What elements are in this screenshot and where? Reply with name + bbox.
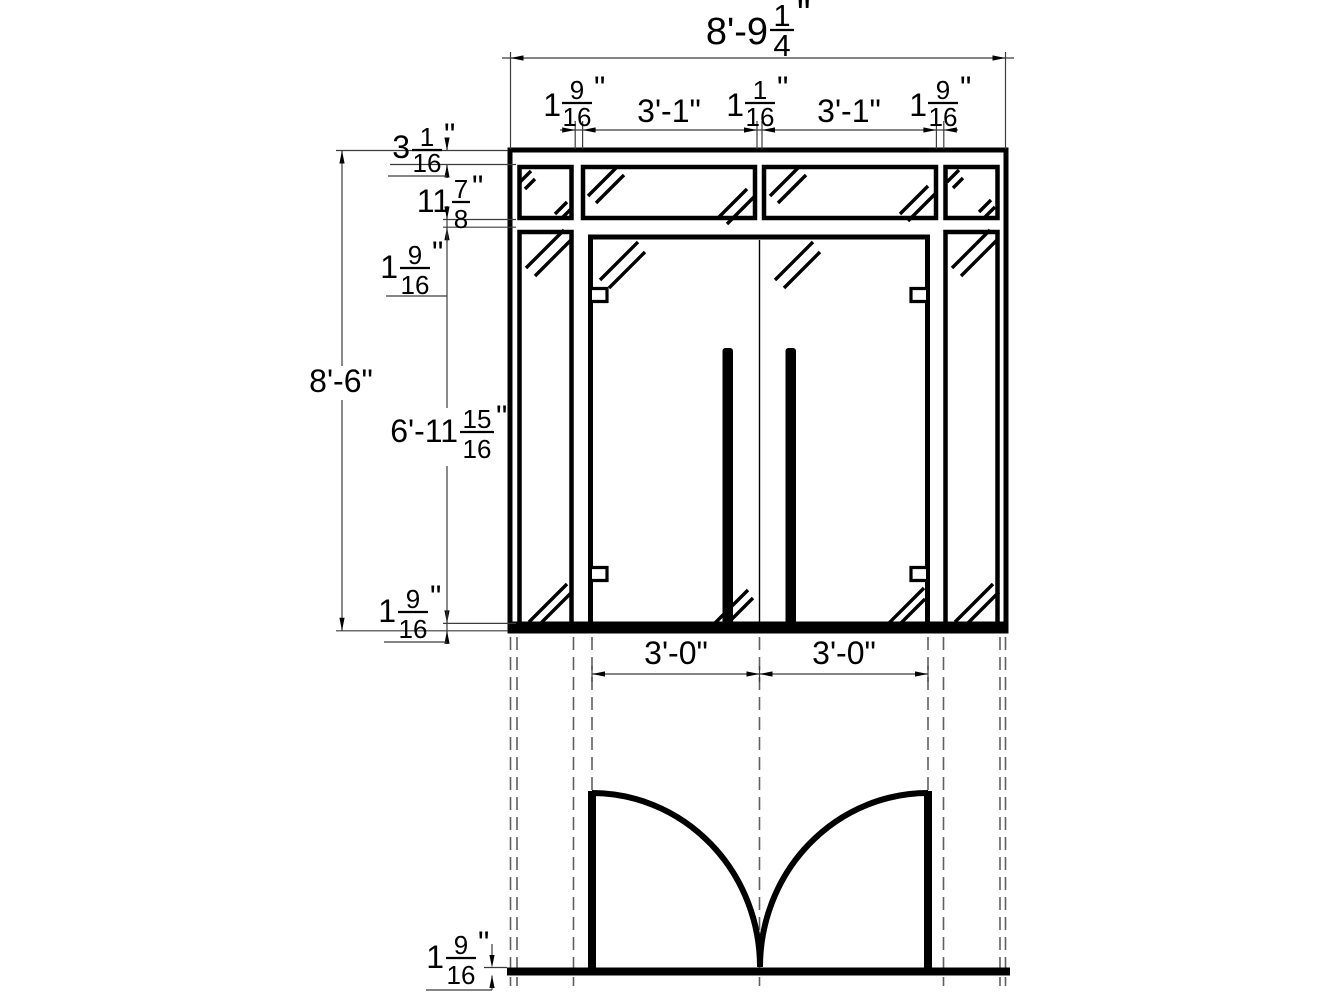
dim-label: 1: [726, 87, 744, 123]
dim-fraction-denominator: 16: [563, 102, 592, 132]
elevation-view: [510, 150, 1006, 632]
dim-transom-gap: 1 9 16 ": [380, 235, 447, 300]
dim-unit: ": [444, 117, 455, 153]
dim-left-column: 3 1 16 " 11 7 8 " 1 9 16 " 6'-11: [378, 117, 516, 644]
glazing-mark: [952, 230, 999, 628]
hinge-mark-left-bottom: [592, 568, 607, 581]
frame-outline: [510, 150, 1006, 631]
dim-unit: ": [432, 235, 443, 271]
dim-fraction-denominator: 8: [454, 204, 468, 234]
dim-fraction-numerator: 9: [408, 240, 422, 270]
dim-fraction-denominator: 4: [773, 28, 790, 63]
glazing-mark: [775, 242, 820, 288]
dim-plan-door-left: 3'-0": [644, 635, 708, 671]
dim-fraction-denominator: 16: [746, 102, 775, 132]
glazing-mark: [947, 170, 995, 217]
dim-fraction-numerator: 15: [463, 404, 492, 434]
door-handle-left: [723, 348, 734, 631]
door-handle-right: [786, 348, 797, 631]
transom-panel-left-end: [519, 167, 572, 219]
dim-fraction-denominator: 16: [413, 148, 442, 178]
dim-unit: ": [472, 169, 483, 205]
dim-label: 8'-9: [706, 11, 768, 53]
dim-label: 3: [392, 129, 410, 165]
dim-fraction-numerator: 7: [454, 174, 468, 204]
dim-unit: ": [960, 70, 971, 106]
dim-fraction-numerator: 9: [936, 75, 950, 105]
dim-fraction-denominator: 16: [463, 434, 492, 464]
sidelight-right: [946, 230, 1000, 628]
dim-fraction-denominator: 16: [399, 614, 428, 644]
dim-fraction-denominator: 16: [447, 960, 476, 990]
dim-label: 1: [426, 939, 444, 975]
dim-fraction-denominator: 16: [929, 102, 958, 132]
dim-overall-height: 8'-6": [304, 151, 508, 631]
door-swing-arc-right: [760, 793, 928, 967]
dim-fraction-numerator: 9: [406, 584, 420, 614]
plan-door-leaf-left: [588, 791, 596, 972]
hinge-mark-right-top: [911, 289, 926, 302]
glazing-mark: [588, 168, 755, 224]
dim-label: 1: [378, 593, 396, 629]
transom-panel-right: [764, 167, 936, 221]
dim-fraction-numerator: 9: [454, 930, 468, 960]
glazing-mark: [526, 230, 572, 628]
dim-plan-door-right: 3'-0": [812, 635, 876, 671]
dim-label: 11: [417, 183, 450, 219]
door-swing-arc-left: [592, 793, 760, 967]
dim-unit: ": [430, 579, 441, 615]
architectural-drawing: 8'-9 1 4 " 1 9 16 " 3'-1" 1 1: [0, 0, 1329, 1000]
dim-label: 1: [909, 87, 927, 123]
dim-unit: ": [594, 70, 605, 106]
sidelight-left: [520, 230, 573, 628]
plan-door-leaf-right: [924, 791, 932, 972]
dim-head-frame: 3 1 16 ": [388, 117, 455, 178]
dim-jamb-left: 1 9 16 ": [543, 70, 605, 132]
dim-panel-left: 3'-1": [637, 93, 701, 129]
transom-panel-right-end: [946, 167, 998, 218]
dim-sill-thickness: 1 9 16 ": [426, 925, 507, 990]
dim-bottom-gap: 1 9 16 ": [378, 579, 447, 644]
dim-label: 1: [380, 249, 398, 285]
glazing-mark: [519, 171, 571, 219]
dim-transom-height: 11 7 8 ": [417, 169, 484, 234]
dim-head-row: 1 9 16 " 3'-1" 1 1 16 " 3'-1" 1 9 16 ": [543, 70, 971, 149]
dim-unit: ": [777, 70, 788, 106]
glazing-mark: [600, 242, 645, 288]
glazing-mark: [770, 168, 936, 221]
dim-fraction-numerator: 1: [753, 75, 767, 105]
transom-panel-left: [583, 167, 755, 224]
plan-view: [507, 637, 1010, 986]
drawing-canvas: 8'-9 1 4 " 1 9 16 " 3'-1" 1 1: [0, 0, 1329, 1000]
hinge-mark-right-bottom: [911, 568, 926, 581]
dim-label: 1: [543, 87, 561, 123]
dim-unit: ": [478, 925, 489, 961]
hinge-mark-left-top: [592, 289, 607, 302]
dim-unit: ": [496, 399, 507, 435]
dim-label: 6'-11: [390, 413, 458, 449]
plan-sill-bar: [507, 968, 1010, 976]
dim-jamb-right: 1 9 16 ": [909, 70, 971, 132]
dim-fraction-numerator: 9: [570, 75, 584, 105]
dim-panel-right: 3'-1": [817, 93, 881, 129]
dim-overall-height-label: 8'-6": [309, 363, 373, 399]
double-door: [591, 237, 928, 632]
dim-jamb-center: 1 1 16 ": [726, 70, 788, 132]
dim-unit: ": [797, 0, 811, 35]
